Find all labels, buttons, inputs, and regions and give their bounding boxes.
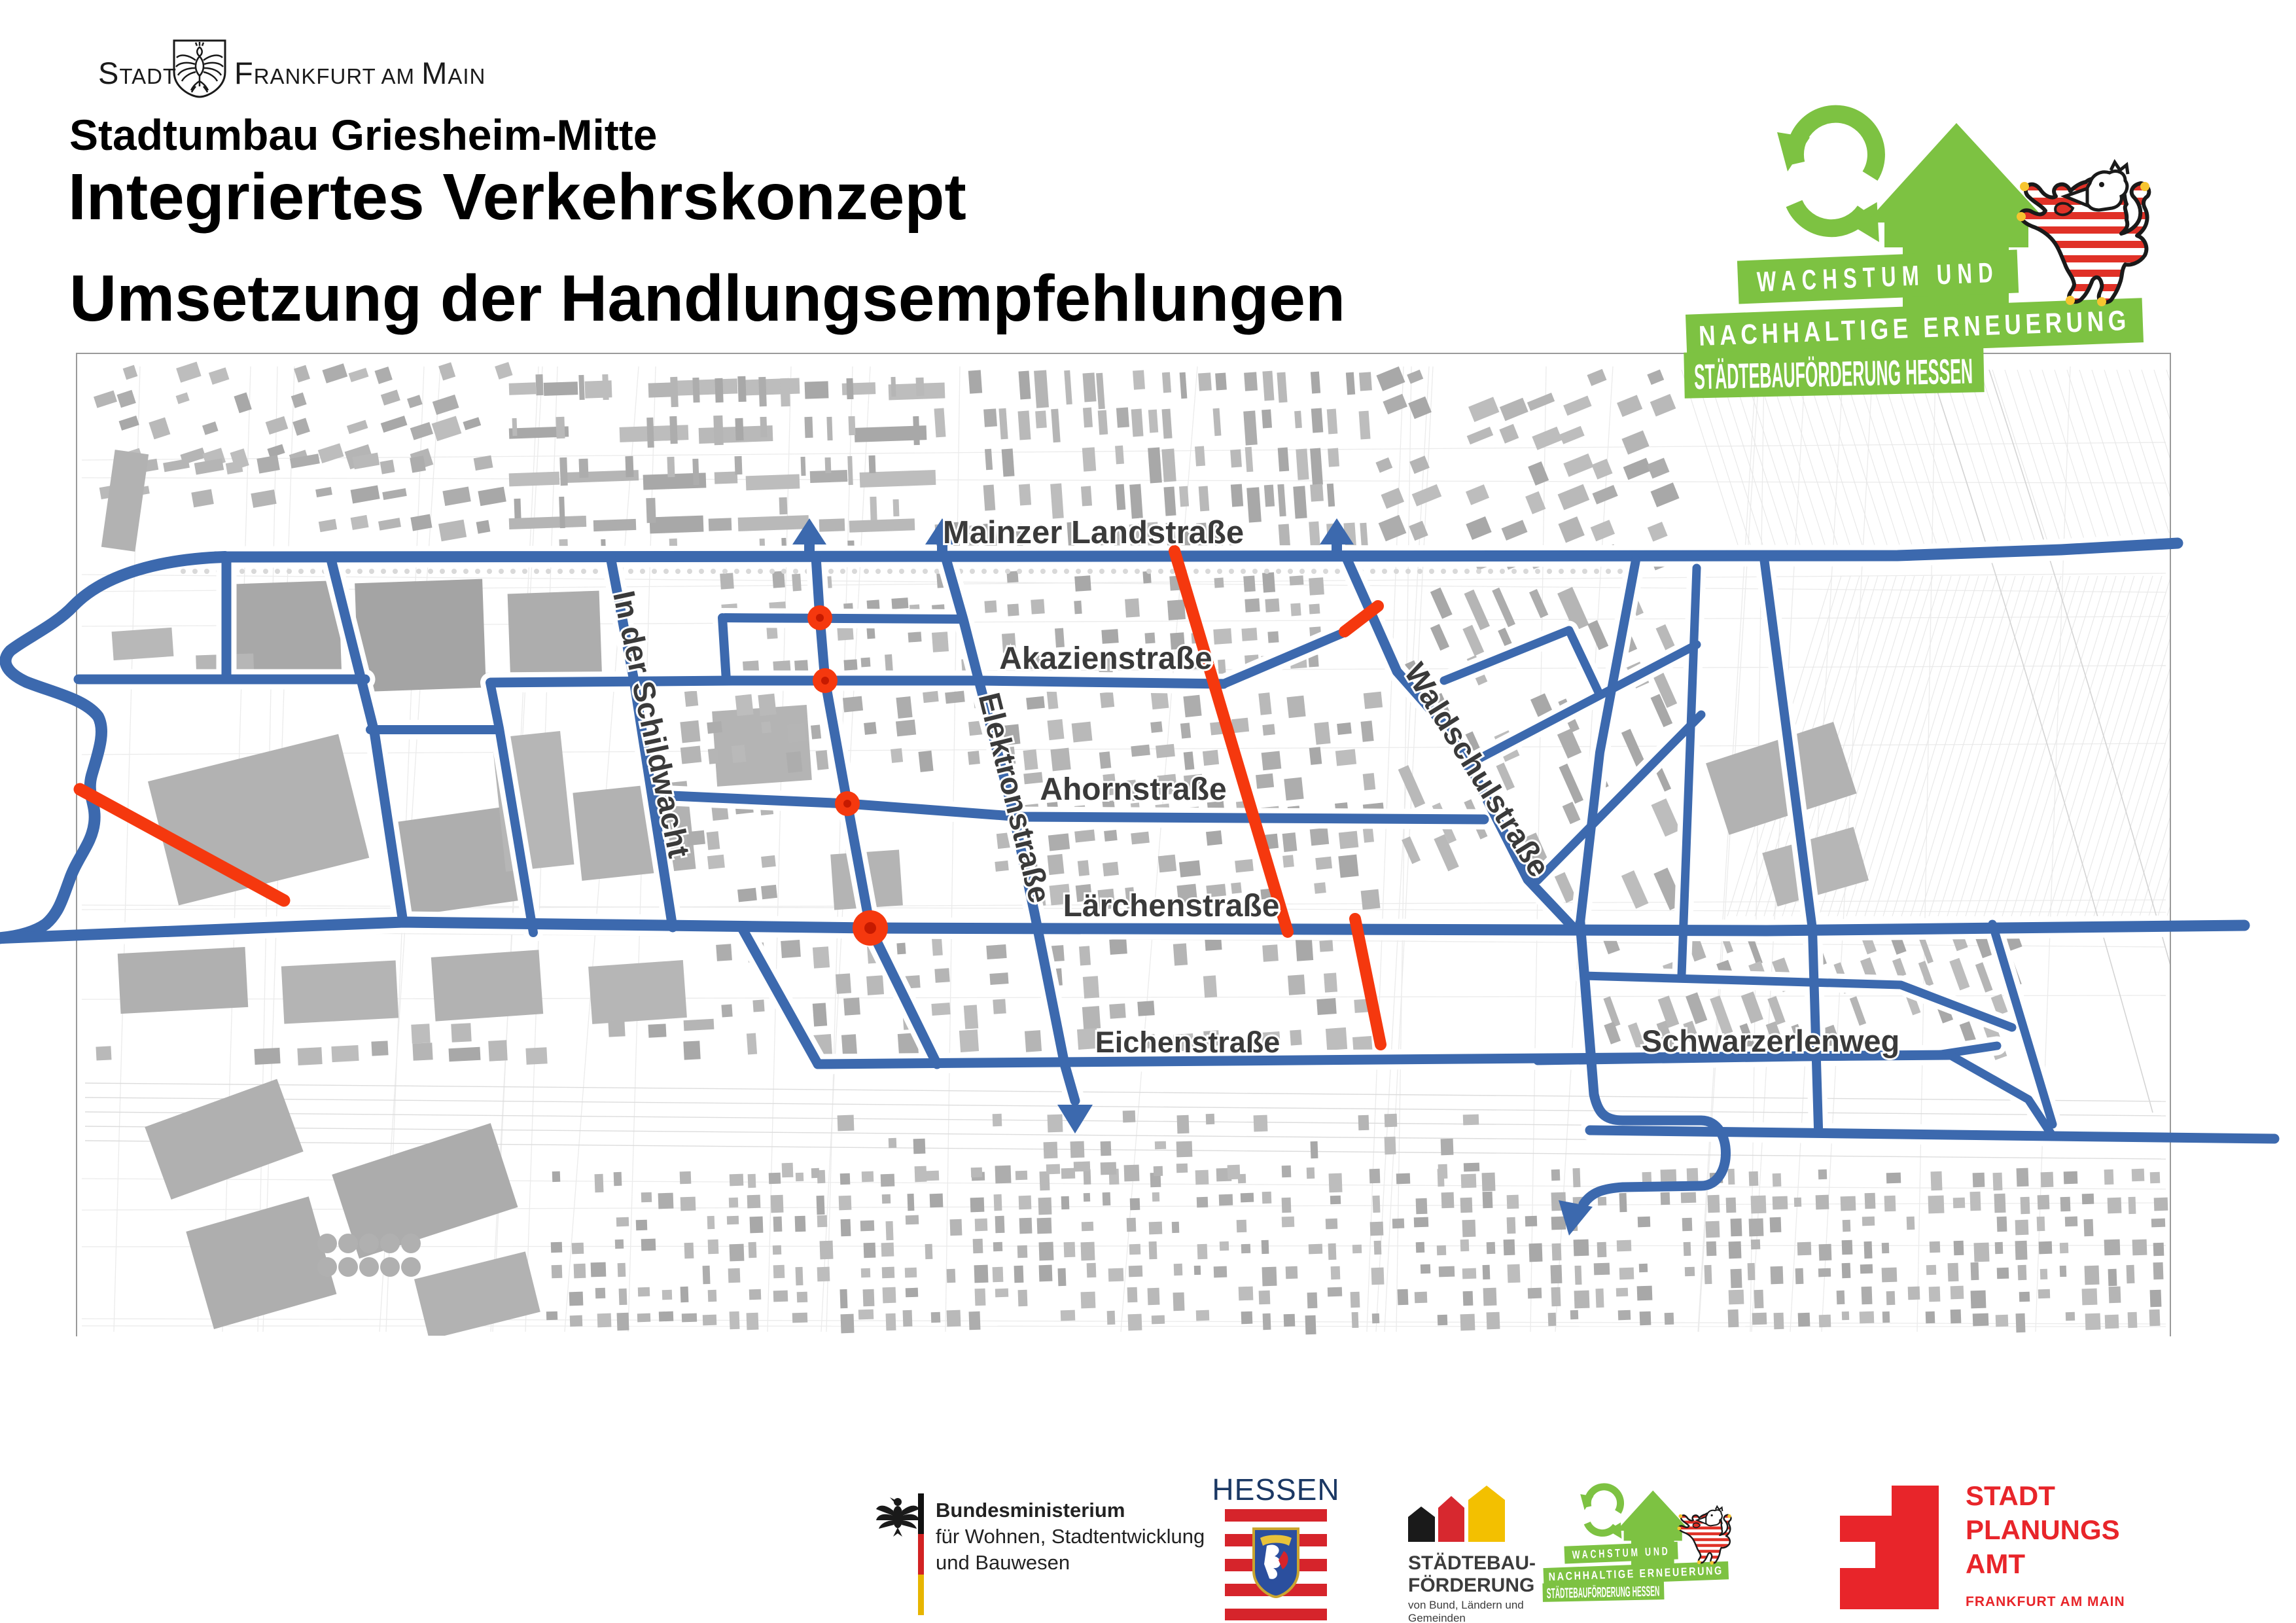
- svg-text:STÄDTEBAUFÖRDERUNG HESSEN: STÄDTEBAUFÖRDERUNG HESSEN: [1693, 352, 1973, 397]
- svg-text:Bundesministerium: Bundesministerium: [936, 1499, 1125, 1522]
- svg-text:FRANKFURT AM MAIN: FRANKFURT AM MAIN: [1966, 1594, 2125, 1609]
- svg-text:Mainzer Landstraße: Mainzer Landstraße: [943, 515, 1244, 550]
- svg-text:Schwarzerlenweg: Schwarzerlenweg: [1642, 1024, 1899, 1058]
- svg-text:FÖRDERUNG: FÖRDERUNG: [1408, 1575, 1534, 1596]
- svg-text:für Wohnen, Stadtentwicklung: für Wohnen, Stadtentwicklung: [936, 1525, 1205, 1548]
- svg-text:HESSEN: HESSEN: [1212, 1472, 1339, 1507]
- svg-text:STADT: STADT: [1966, 1484, 2055, 1511]
- svg-text:AMT: AMT: [1966, 1548, 2025, 1579]
- svg-text:von Bund, Ländern und: von Bund, Ländern und: [1408, 1599, 1524, 1611]
- svg-text:PLANUNGS: PLANUNGS: [1966, 1514, 2120, 1545]
- svg-text:Ahornstraße: Ahornstraße: [1040, 772, 1226, 807]
- svg-text:STÄDTEBAU-: STÄDTEBAU-: [1408, 1552, 1536, 1574]
- svg-text:und Bauwesen: und Bauwesen: [936, 1551, 1070, 1574]
- svg-text:Eichenstraße: Eichenstraße: [1095, 1026, 1280, 1059]
- svg-text:Lärchenstraße: Lärchenstraße: [1063, 889, 1280, 923]
- svg-text:STÄDTEBAUFÖRDERUNG HESSEN: STÄDTEBAUFÖRDERUNG HESSEN: [1547, 1582, 1660, 1601]
- svg-text:Akazienstraße: Akazienstraße: [999, 641, 1212, 676]
- svg-text:Gemeinden: Gemeinden: [1408, 1612, 1466, 1622]
